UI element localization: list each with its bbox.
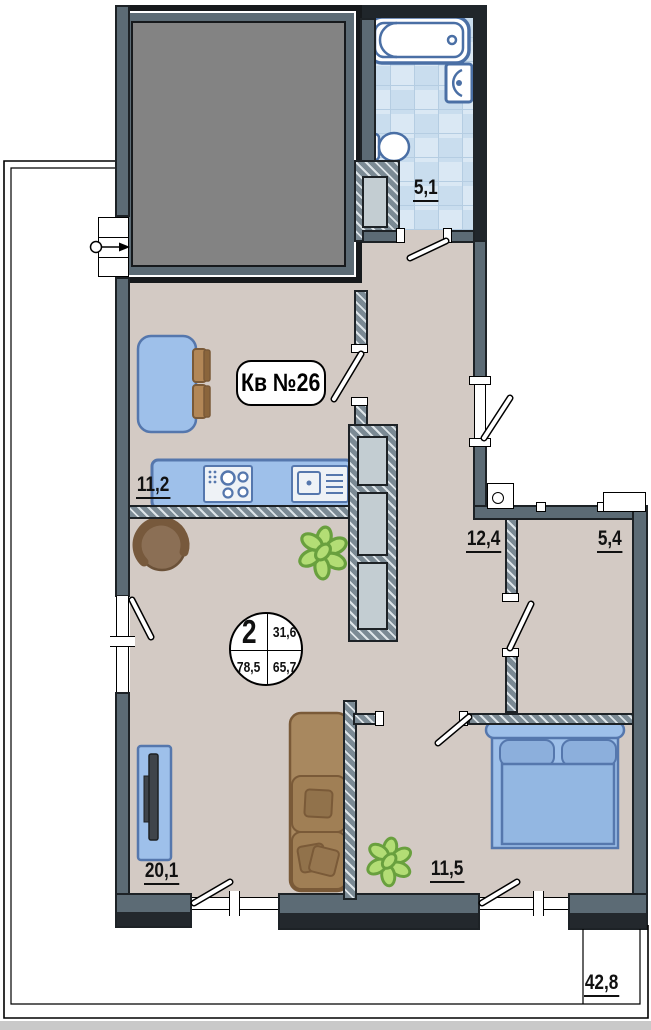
door-leaf-bedroom xyxy=(438,717,469,743)
annotation-layer xyxy=(0,0,651,1030)
terrace-outline xyxy=(4,161,648,1018)
door-leaves xyxy=(132,241,531,903)
door-leaf-living-window xyxy=(194,882,230,903)
floor-plan: 5,1 11,2 12,4 5,4 20,1 11,5 42,8 Кв №26 … xyxy=(0,0,651,1030)
door-leaf-entrance xyxy=(484,398,510,438)
door-leaf-wardrobe xyxy=(510,604,531,648)
door-leaf-balcony-west xyxy=(132,600,151,637)
page-edge xyxy=(0,1021,651,1030)
door-leaf-bathroom xyxy=(410,241,446,258)
door-leaf-kitchen xyxy=(334,354,361,399)
door-leaf-bedroom-window xyxy=(482,882,517,903)
entry-arrow-icon xyxy=(91,242,131,253)
